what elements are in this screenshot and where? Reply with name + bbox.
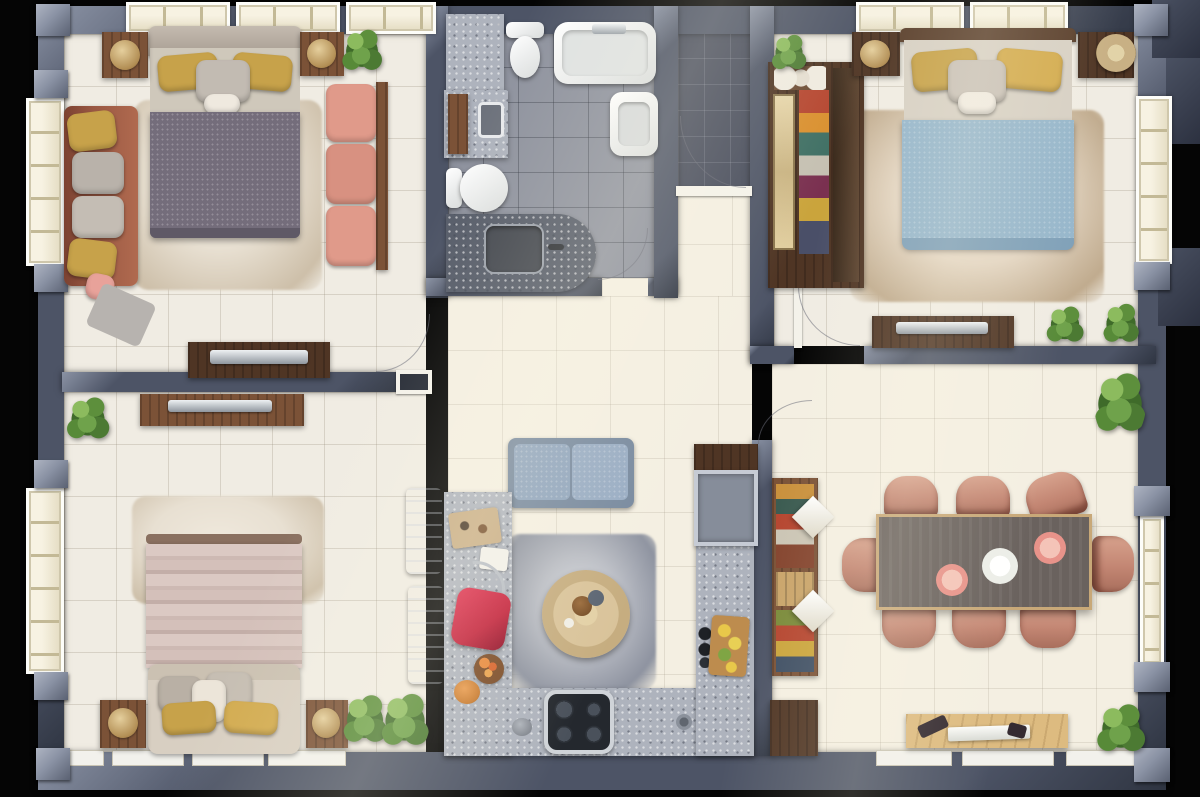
bed-pillow-white <box>204 94 240 114</box>
decor-bowl <box>110 40 140 70</box>
wardrobe-side <box>833 68 859 282</box>
bathroom-door-swing <box>598 228 648 280</box>
decor-bowl <box>312 708 340 738</box>
lemon-board <box>708 615 750 678</box>
table-cup <box>564 618 574 628</box>
tv <box>210 350 308 364</box>
rattan-basket-chair <box>1096 34 1136 72</box>
hall-strip-floor <box>678 190 750 302</box>
window-bottom-5 <box>876 750 952 766</box>
decor-bowl <box>108 708 138 738</box>
wall-post <box>34 460 68 488</box>
bedroom-master-door <box>400 374 428 390</box>
sink-drain <box>676 714 692 730</box>
dining-chair <box>884 476 938 518</box>
wall-post <box>1134 748 1170 782</box>
wall-bathroom-right <box>654 6 678 298</box>
dining-chair <box>1020 604 1076 648</box>
fridge <box>694 470 758 546</box>
loveseat-cushion <box>514 444 570 500</box>
balcony-door-dining <box>1140 516 1164 666</box>
window-master-left <box>26 98 64 266</box>
vanity-faucet <box>548 244 564 250</box>
floor-plan <box>0 0 1200 797</box>
vanity-tray <box>448 94 468 154</box>
wall-bedroom2-bottom-a <box>750 346 794 364</box>
bench-pillow-yellow <box>161 700 217 736</box>
bathtub-basin <box>562 30 648 76</box>
bedroom2-duvet <box>902 120 1074 248</box>
plate-pink <box>1034 532 1066 564</box>
orange-pot <box>454 680 480 704</box>
wardrobe-clothes <box>799 90 829 254</box>
tv <box>168 400 272 412</box>
bar-stool <box>406 488 442 574</box>
wall-post <box>1134 486 1170 516</box>
bedroom3-bed-top-rail <box>146 534 302 544</box>
bench-pillow-yellow <box>223 700 279 736</box>
master-bed-footfold <box>150 228 300 238</box>
wall-bedroom2-bottom-b <box>864 346 1156 364</box>
plant <box>1102 298 1140 350</box>
plant <box>380 686 430 756</box>
dining-chair <box>956 476 1010 518</box>
window-bottom-6 <box>962 750 1054 766</box>
bed-pillow-white <box>958 92 996 114</box>
bedroom-master-door-swing <box>376 314 430 372</box>
pink-sofa-cushion <box>326 206 376 266</box>
dining-chair <box>1092 536 1134 592</box>
plant <box>1094 364 1146 444</box>
wall-post <box>34 264 68 292</box>
wall-post <box>34 672 68 700</box>
master-bed-duvet <box>150 112 300 238</box>
bedroom-2-door-swing <box>798 286 860 346</box>
wall-post <box>34 70 68 98</box>
plant <box>770 30 808 76</box>
fridge-top-cabinet <box>694 444 758 470</box>
wall-post <box>1134 262 1170 290</box>
low-cabinet <box>770 700 818 756</box>
wall-post <box>1134 662 1170 692</box>
wall-post <box>36 4 70 36</box>
bedroom2-duvet-fold <box>902 238 1074 250</box>
bathtub-faucet <box>592 24 626 34</box>
wall-sink-basin <box>618 102 650 146</box>
plant <box>340 24 384 78</box>
plate-white <box>982 548 1018 584</box>
cooktop <box>548 694 610 750</box>
fruit-bowl <box>474 654 504 684</box>
bench-behind-pink-sofa <box>376 82 388 270</box>
corner-vanity-sink <box>486 226 542 272</box>
plant <box>1044 302 1086 348</box>
tv <box>896 322 988 334</box>
bath-counter <box>446 14 504 90</box>
window-bedroom2-right <box>1136 96 1172 264</box>
cutting-board <box>448 507 503 550</box>
loveseat-cushion <box>572 444 628 500</box>
dining-chair <box>882 604 936 648</box>
bedroom3-duvet-striped <box>146 544 302 668</box>
window-bedroom3-left <box>26 488 64 674</box>
entry-door-swing <box>680 116 746 188</box>
decor-bowl <box>860 40 890 68</box>
dining-chair <box>952 604 1006 648</box>
plate-pink <box>936 564 968 596</box>
bathroom-door-opening <box>602 278 648 296</box>
red-cushion <box>449 586 512 652</box>
wall-post <box>36 748 70 780</box>
bar-stool <box>408 586 444 684</box>
pink-sofa-cushion <box>326 144 376 204</box>
pink-sofa-cushion <box>326 84 376 142</box>
plant <box>1094 698 1148 760</box>
mortar <box>512 718 532 736</box>
toilet2-bowl <box>460 164 508 212</box>
wall-post <box>1134 4 1168 36</box>
sofa-pillow-gray <box>72 196 124 238</box>
sofa-pillow-gray <box>72 152 124 194</box>
plant <box>64 392 112 446</box>
dining-entry-swing <box>758 400 812 444</box>
toilet-bowl <box>510 36 540 78</box>
table-bowl <box>588 590 604 606</box>
vanity-sink <box>478 102 504 138</box>
sofa-pillow-yellow <box>66 109 118 153</box>
wardrobe-mirror-door <box>773 94 795 250</box>
decor-bowl <box>307 39 336 68</box>
